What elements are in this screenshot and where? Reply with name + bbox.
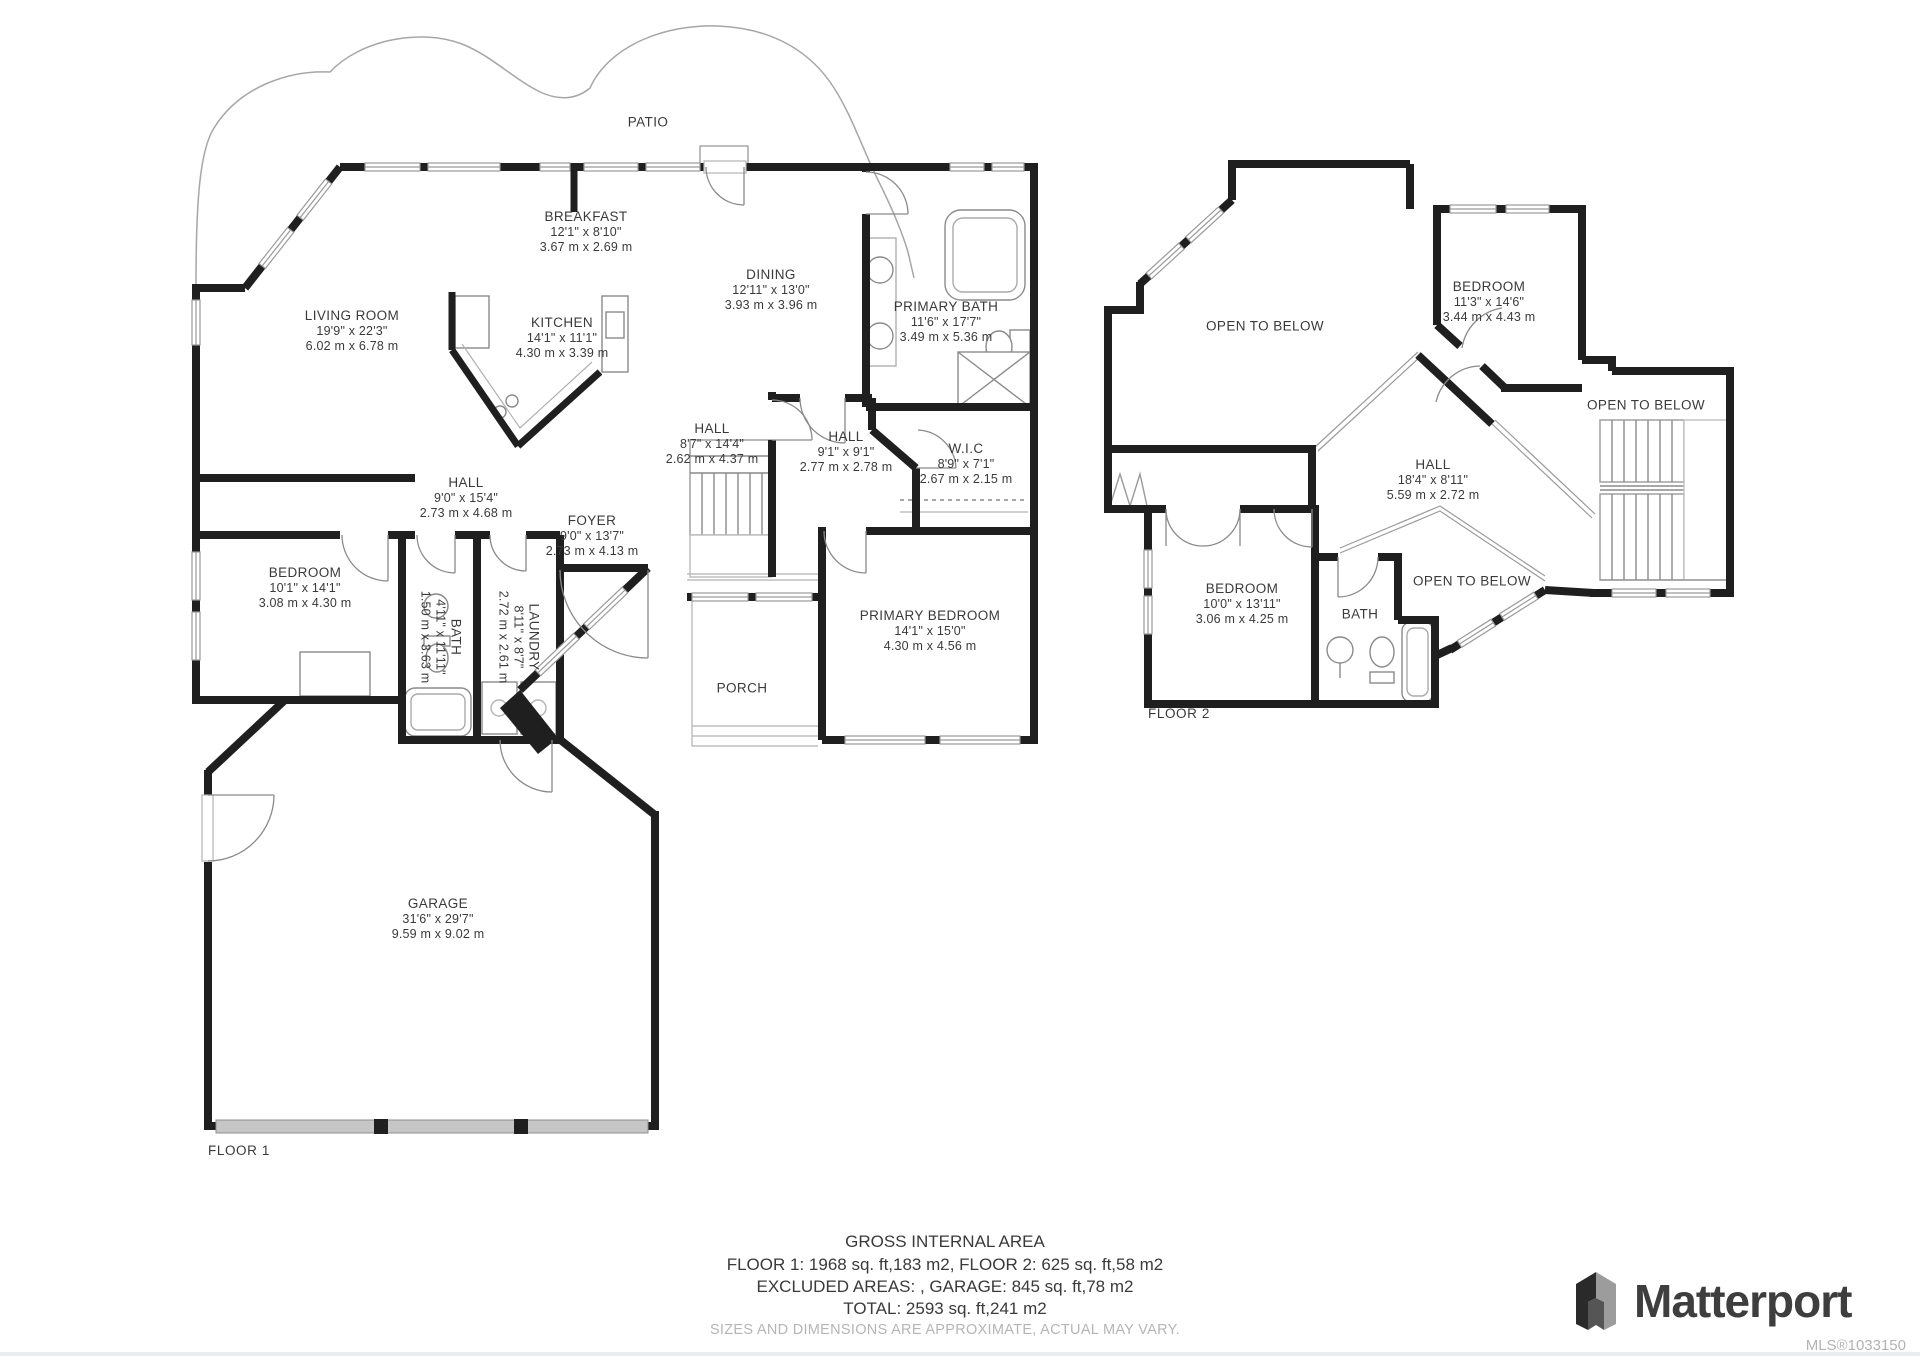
room-label-living-room: LIVING ROOM19'9" x 22'3"6.02 m x 6.78 m — [305, 308, 399, 355]
bottom-edge-strip — [0, 1352, 1920, 1356]
bath2-fixtures — [1327, 622, 1433, 702]
area-excluded-line: EXCLUDED AREAS: , GARAGE: 845 sq. ft,78 … — [710, 1277, 1180, 1297]
room-label-bedroom-upper: BEDROOM11'3" x 14'6"3.44 m x 4.43 m — [1443, 279, 1536, 326]
room-label-hall-upper: HALL8'7" x 14'4"2.62 m x 4.37 m — [666, 421, 759, 468]
room-label-hall-mid: HALL9'1" x 9'1"2.77 m x 2.78 m — [800, 429, 893, 476]
staircase-floor2 — [1600, 420, 1730, 580]
area-total-line: TOTAL: 2593 sq. ft,241 m2 — [710, 1299, 1180, 1319]
room-label-laundry: LAUNDRY8'11" x 8'7"2.72 m x 2.61 m — [495, 591, 542, 684]
room-label-kitchen: KITCHEN14'1" x 11'1"4.30 m x 3.39 m — [516, 315, 609, 362]
closet-bifold-doors — [1110, 474, 1147, 506]
matterport-brand: Matterport — [1572, 1272, 1851, 1330]
room-label-hall-floor2: HALL18'4" x 8'11"5.59 m x 2.72 m — [1387, 457, 1480, 504]
area-disclaimer: SIZES AND DIMENSIONS ARE APPROXIMATE, AC… — [710, 1322, 1180, 1338]
room-label-porch: PORCH — [717, 680, 768, 696]
area-summary: GROSS INTERNAL AREA FLOOR 1: 1968 sq. ft… — [710, 1232, 1180, 1338]
dresser — [300, 652, 370, 696]
room-label-bedroom-lower: BEDROOM10'0" x 13'11"3.06 m x 4.25 m — [1196, 581, 1289, 628]
room-label-wic: W.I.C8'9" x 7'1"2.67 m x 2.15 m — [920, 441, 1013, 488]
room-label-foyer: FOYER9'0" x 13'7"2.73 m x 4.13 m — [546, 513, 639, 560]
room-label-bath: BATH4'11" x 11'11"1.50 m x 3.63 m — [417, 591, 464, 684]
floor2-tag: FLOOR 2 — [1148, 706, 1210, 721]
room-label-garage: GARAGE31'6" x 29'7"9.59 m x 9.02 m — [392, 896, 485, 943]
room-label-bedroom: BEDROOM10'1" x 14'1"3.08 m x 4.30 m — [259, 565, 352, 612]
room-label-open-to-below-bottom: OPEN TO BELOW — [1413, 573, 1531, 589]
matterport-wordmark: Matterport — [1634, 1274, 1851, 1328]
floor-plan-page: PATIO BREAKFAST12'1" x 8'10"3.67 m x 2.6… — [0, 0, 1920, 1356]
room-label-open-to-below-right: OPEN TO BELOW — [1587, 397, 1705, 413]
room-label-open-to-below-left: OPEN TO BELOW — [1206, 318, 1324, 334]
room-label-dining: DINING12'11" x 13'0"3.93 m x 3.96 m — [725, 267, 818, 314]
room-label-patio: PATIO — [628, 114, 669, 130]
floor-plan-drawing — [0, 0, 1920, 1356]
room-label-primary-bath: PRIMARY BATH11'6" x 17'7"3.49 m x 5.36 m — [894, 299, 999, 346]
floor1-windows — [192, 161, 1024, 861]
room-label-breakfast: BREAKFAST12'1" x 8'10"3.67 m x 2.69 m — [540, 209, 633, 256]
garage-door — [216, 1119, 648, 1134]
room-label-hall-lower: HALL9'0" x 15'4"2.73 m x 4.68 m — [420, 475, 513, 522]
area-summary-title: GROSS INTERNAL AREA — [710, 1232, 1180, 1252]
area-floor-line: FLOOR 1: 1968 sq. ft,183 m2, FLOOR 2: 62… — [710, 1255, 1180, 1275]
room-label-bath-floor2: BATH — [1342, 606, 1379, 622]
floor1-tag: FLOOR 1 — [208, 1143, 270, 1158]
room-label-primary-bedroom: PRIMARY BEDROOM14'1" x 15'0"4.30 m x 4.5… — [860, 608, 1001, 655]
matterport-logo-icon — [1572, 1272, 1620, 1330]
